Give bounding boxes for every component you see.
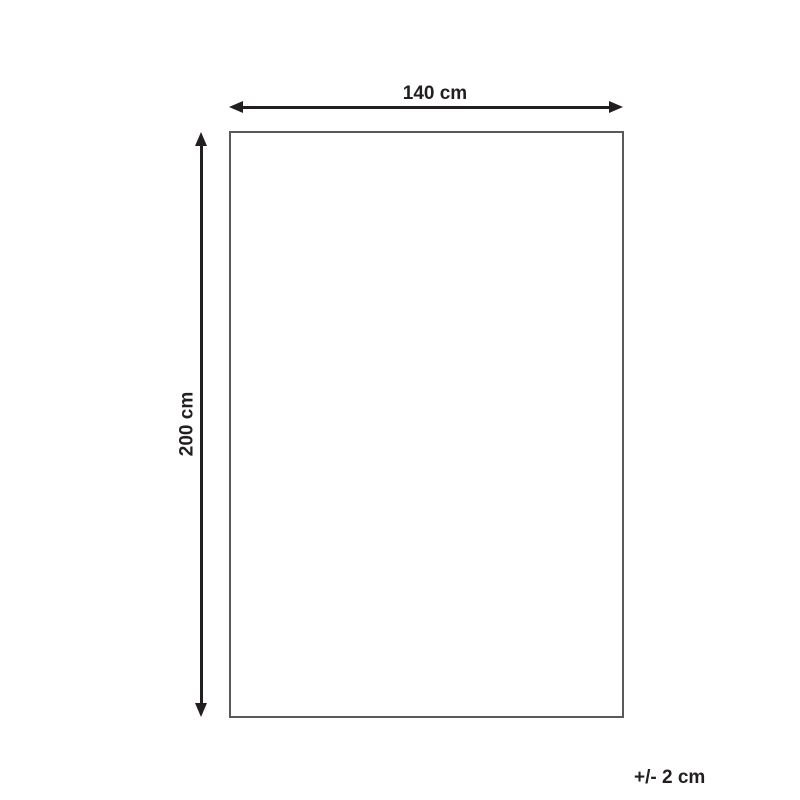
arrowhead-down-icon [195, 703, 207, 717]
height-arrow-shaft [200, 141, 203, 708]
tolerance-label: +/- 2 cm [634, 768, 705, 787]
width-arrow-shaft [238, 106, 614, 109]
dimension-diagram: 140 cm 200 cm +/- 2 cm [0, 0, 800, 800]
product-outline [229, 131, 624, 718]
width-label: 140 cm [229, 84, 623, 103]
height-label: 200 cm [178, 392, 197, 456]
